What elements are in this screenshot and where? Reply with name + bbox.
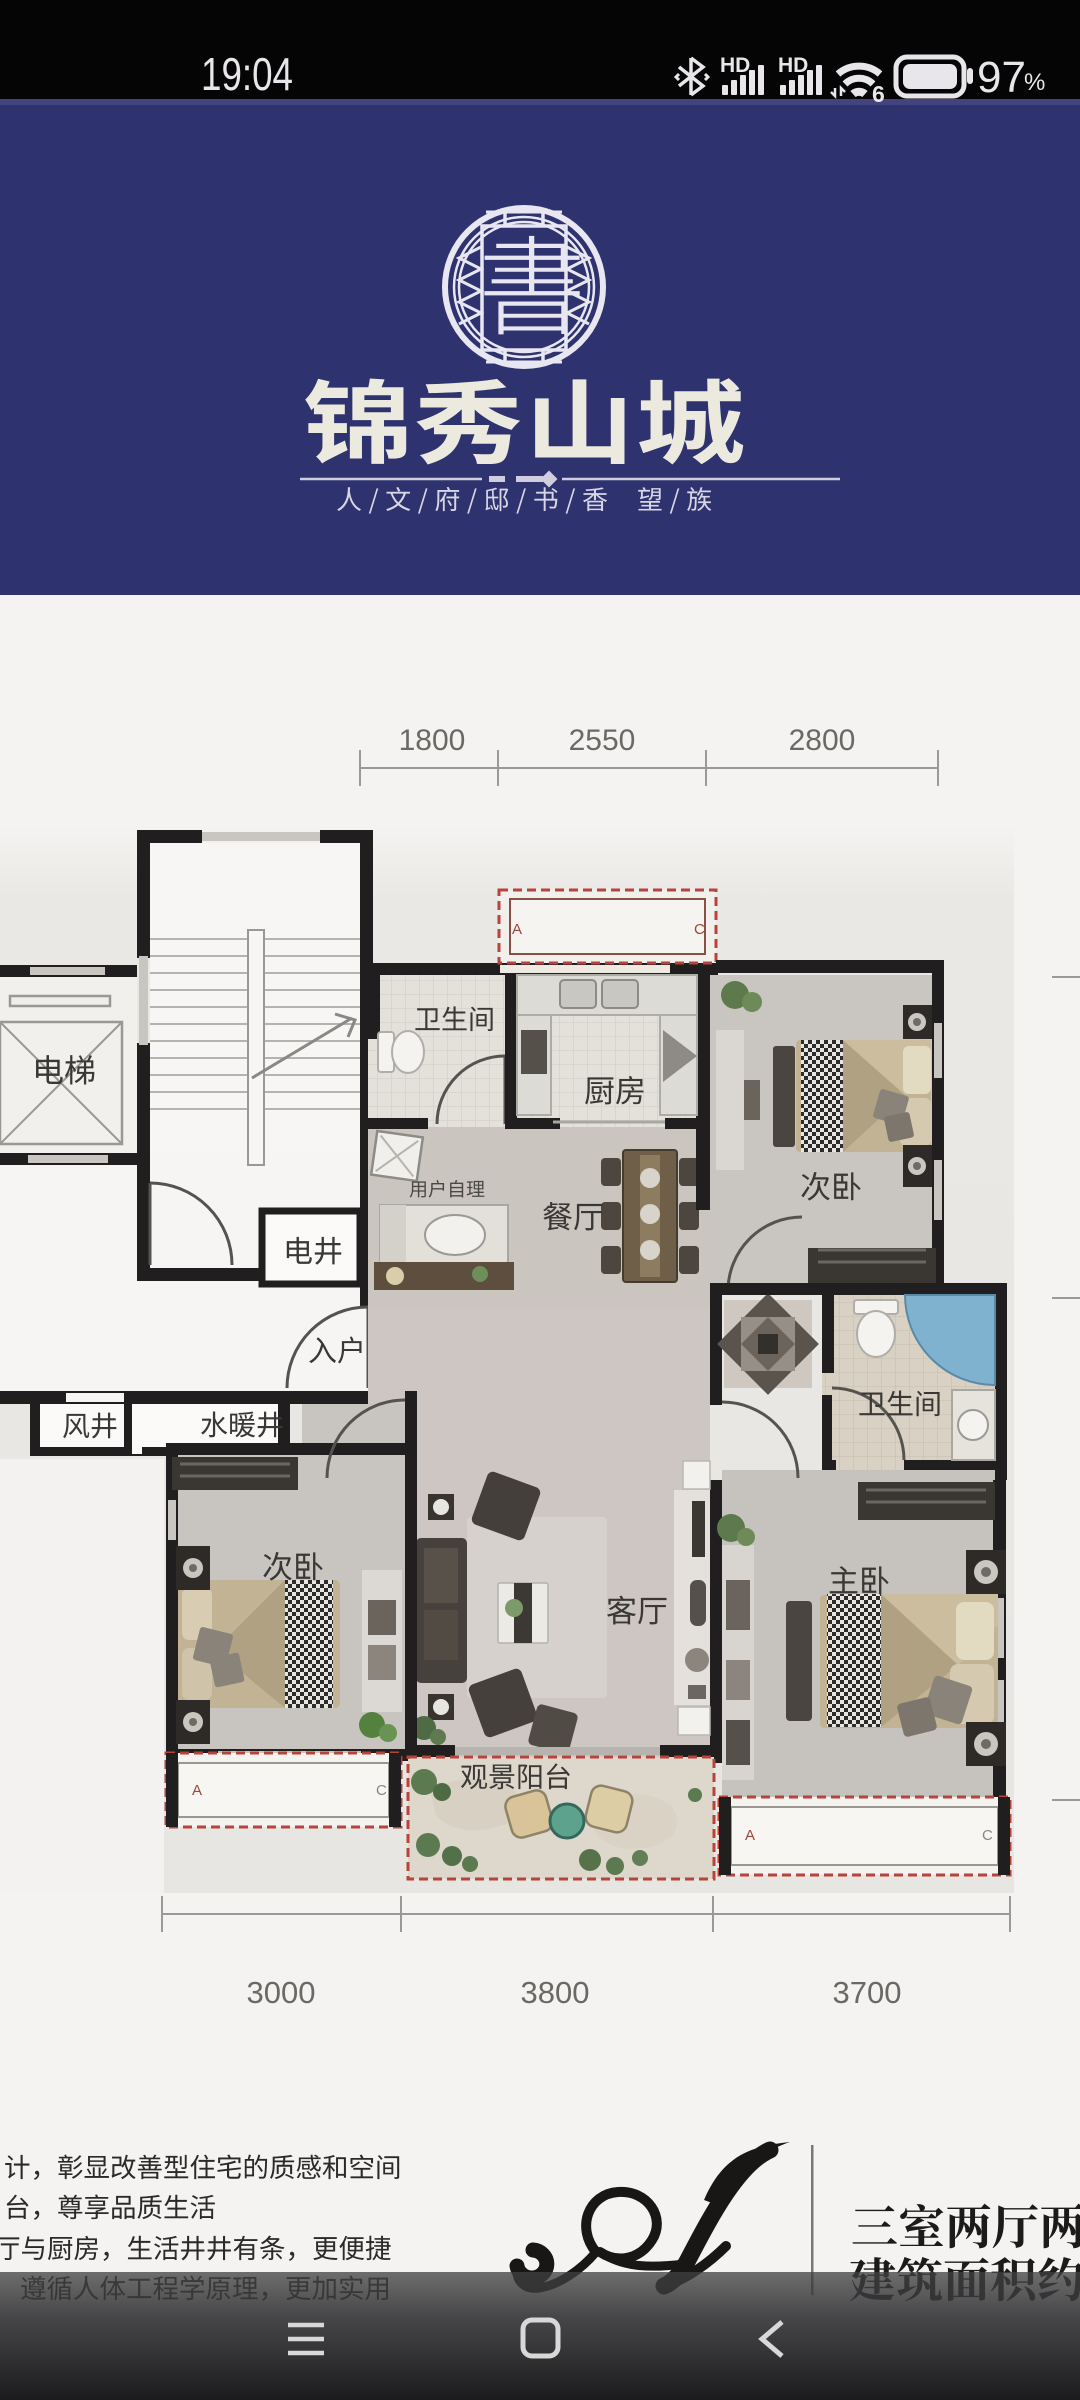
svg-text:%: % — [1024, 69, 1045, 96]
svg-text:6: 6 — [872, 81, 885, 107]
svg-text:3000: 3000 — [247, 1975, 316, 2010]
svg-text:C: C — [694, 921, 705, 938]
svg-text:97: 97 — [977, 53, 1026, 102]
svg-text:A: A — [192, 1782, 202, 1799]
svg-text:HD: HD — [778, 54, 808, 77]
svg-text:2550: 2550 — [569, 724, 636, 757]
svg-text:HD: HD — [720, 54, 750, 77]
svg-text:A: A — [512, 921, 522, 938]
svg-text:3800: 3800 — [521, 1975, 590, 2010]
svg-text:19:04: 19:04 — [201, 48, 293, 100]
svg-text:A: A — [745, 1827, 755, 1844]
svg-text:3700: 3700 — [833, 1975, 902, 2010]
svg-text:C: C — [982, 1827, 993, 1844]
svg-text:2800: 2800 — [789, 724, 856, 757]
svg-text:1800: 1800 — [399, 724, 466, 757]
svg-text:C: C — [376, 1782, 387, 1799]
